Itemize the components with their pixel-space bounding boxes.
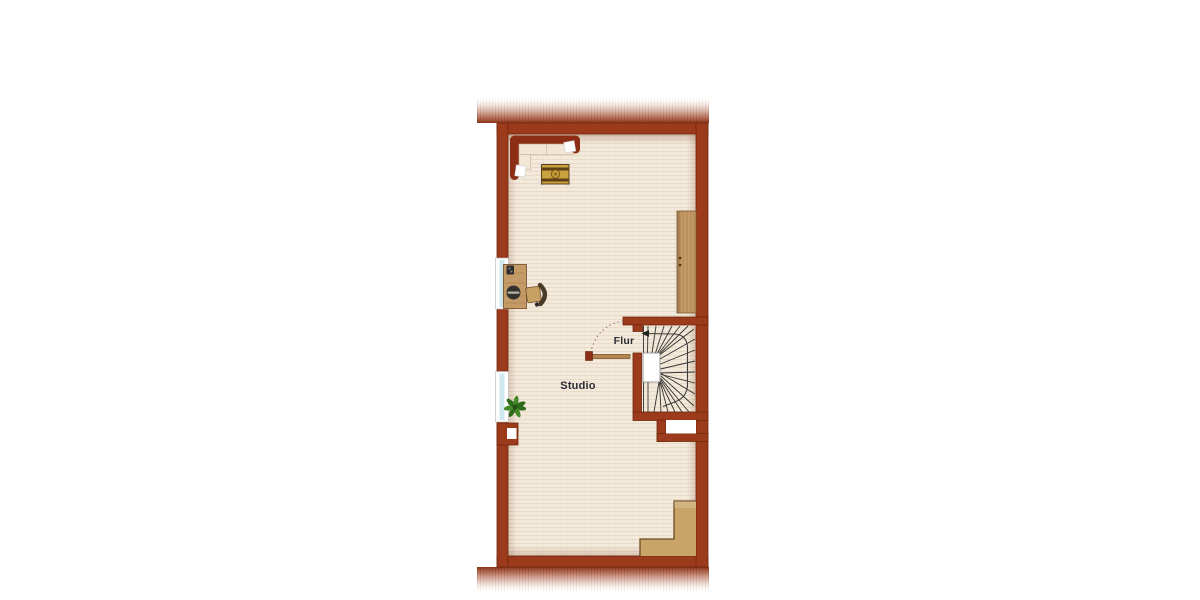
door-leaf bbox=[589, 355, 630, 359]
chimney-block bbox=[497, 423, 518, 445]
stair-wall-left bbox=[633, 353, 642, 413]
floorplan-canvas: Studio Flur bbox=[0, 0, 1200, 600]
studio-room-label: Studio bbox=[558, 380, 598, 392]
studio-floor bbox=[508, 134, 696, 556]
wardrobe-handle bbox=[679, 257, 682, 260]
coffee-table bbox=[540, 163, 570, 185]
wall-right bbox=[696, 123, 708, 567]
flur-room-label: Flur bbox=[610, 335, 638, 347]
wall-left bbox=[497, 123, 508, 567]
wall-bottom bbox=[497, 556, 708, 567]
stair-wall-top bbox=[623, 317, 708, 325]
stair-wall-stub bbox=[633, 325, 643, 332]
window-lower bbox=[496, 372, 509, 423]
wardrobe-handle bbox=[679, 264, 682, 267]
floorplan-drawing bbox=[0, 0, 1200, 600]
stair-void bbox=[643, 353, 660, 382]
wall-top bbox=[497, 123, 708, 134]
stairwell-niche bbox=[666, 420, 696, 434]
niche-wall-bottom bbox=[657, 434, 708, 442]
door-end-block bbox=[586, 352, 593, 361]
sofa-pillow bbox=[564, 141, 576, 153]
stair-wall-bottom bbox=[633, 412, 708, 421]
sofa-pillow bbox=[515, 165, 526, 177]
desk bbox=[504, 265, 527, 309]
wardrobe bbox=[677, 211, 696, 313]
desk-phone bbox=[507, 266, 515, 275]
